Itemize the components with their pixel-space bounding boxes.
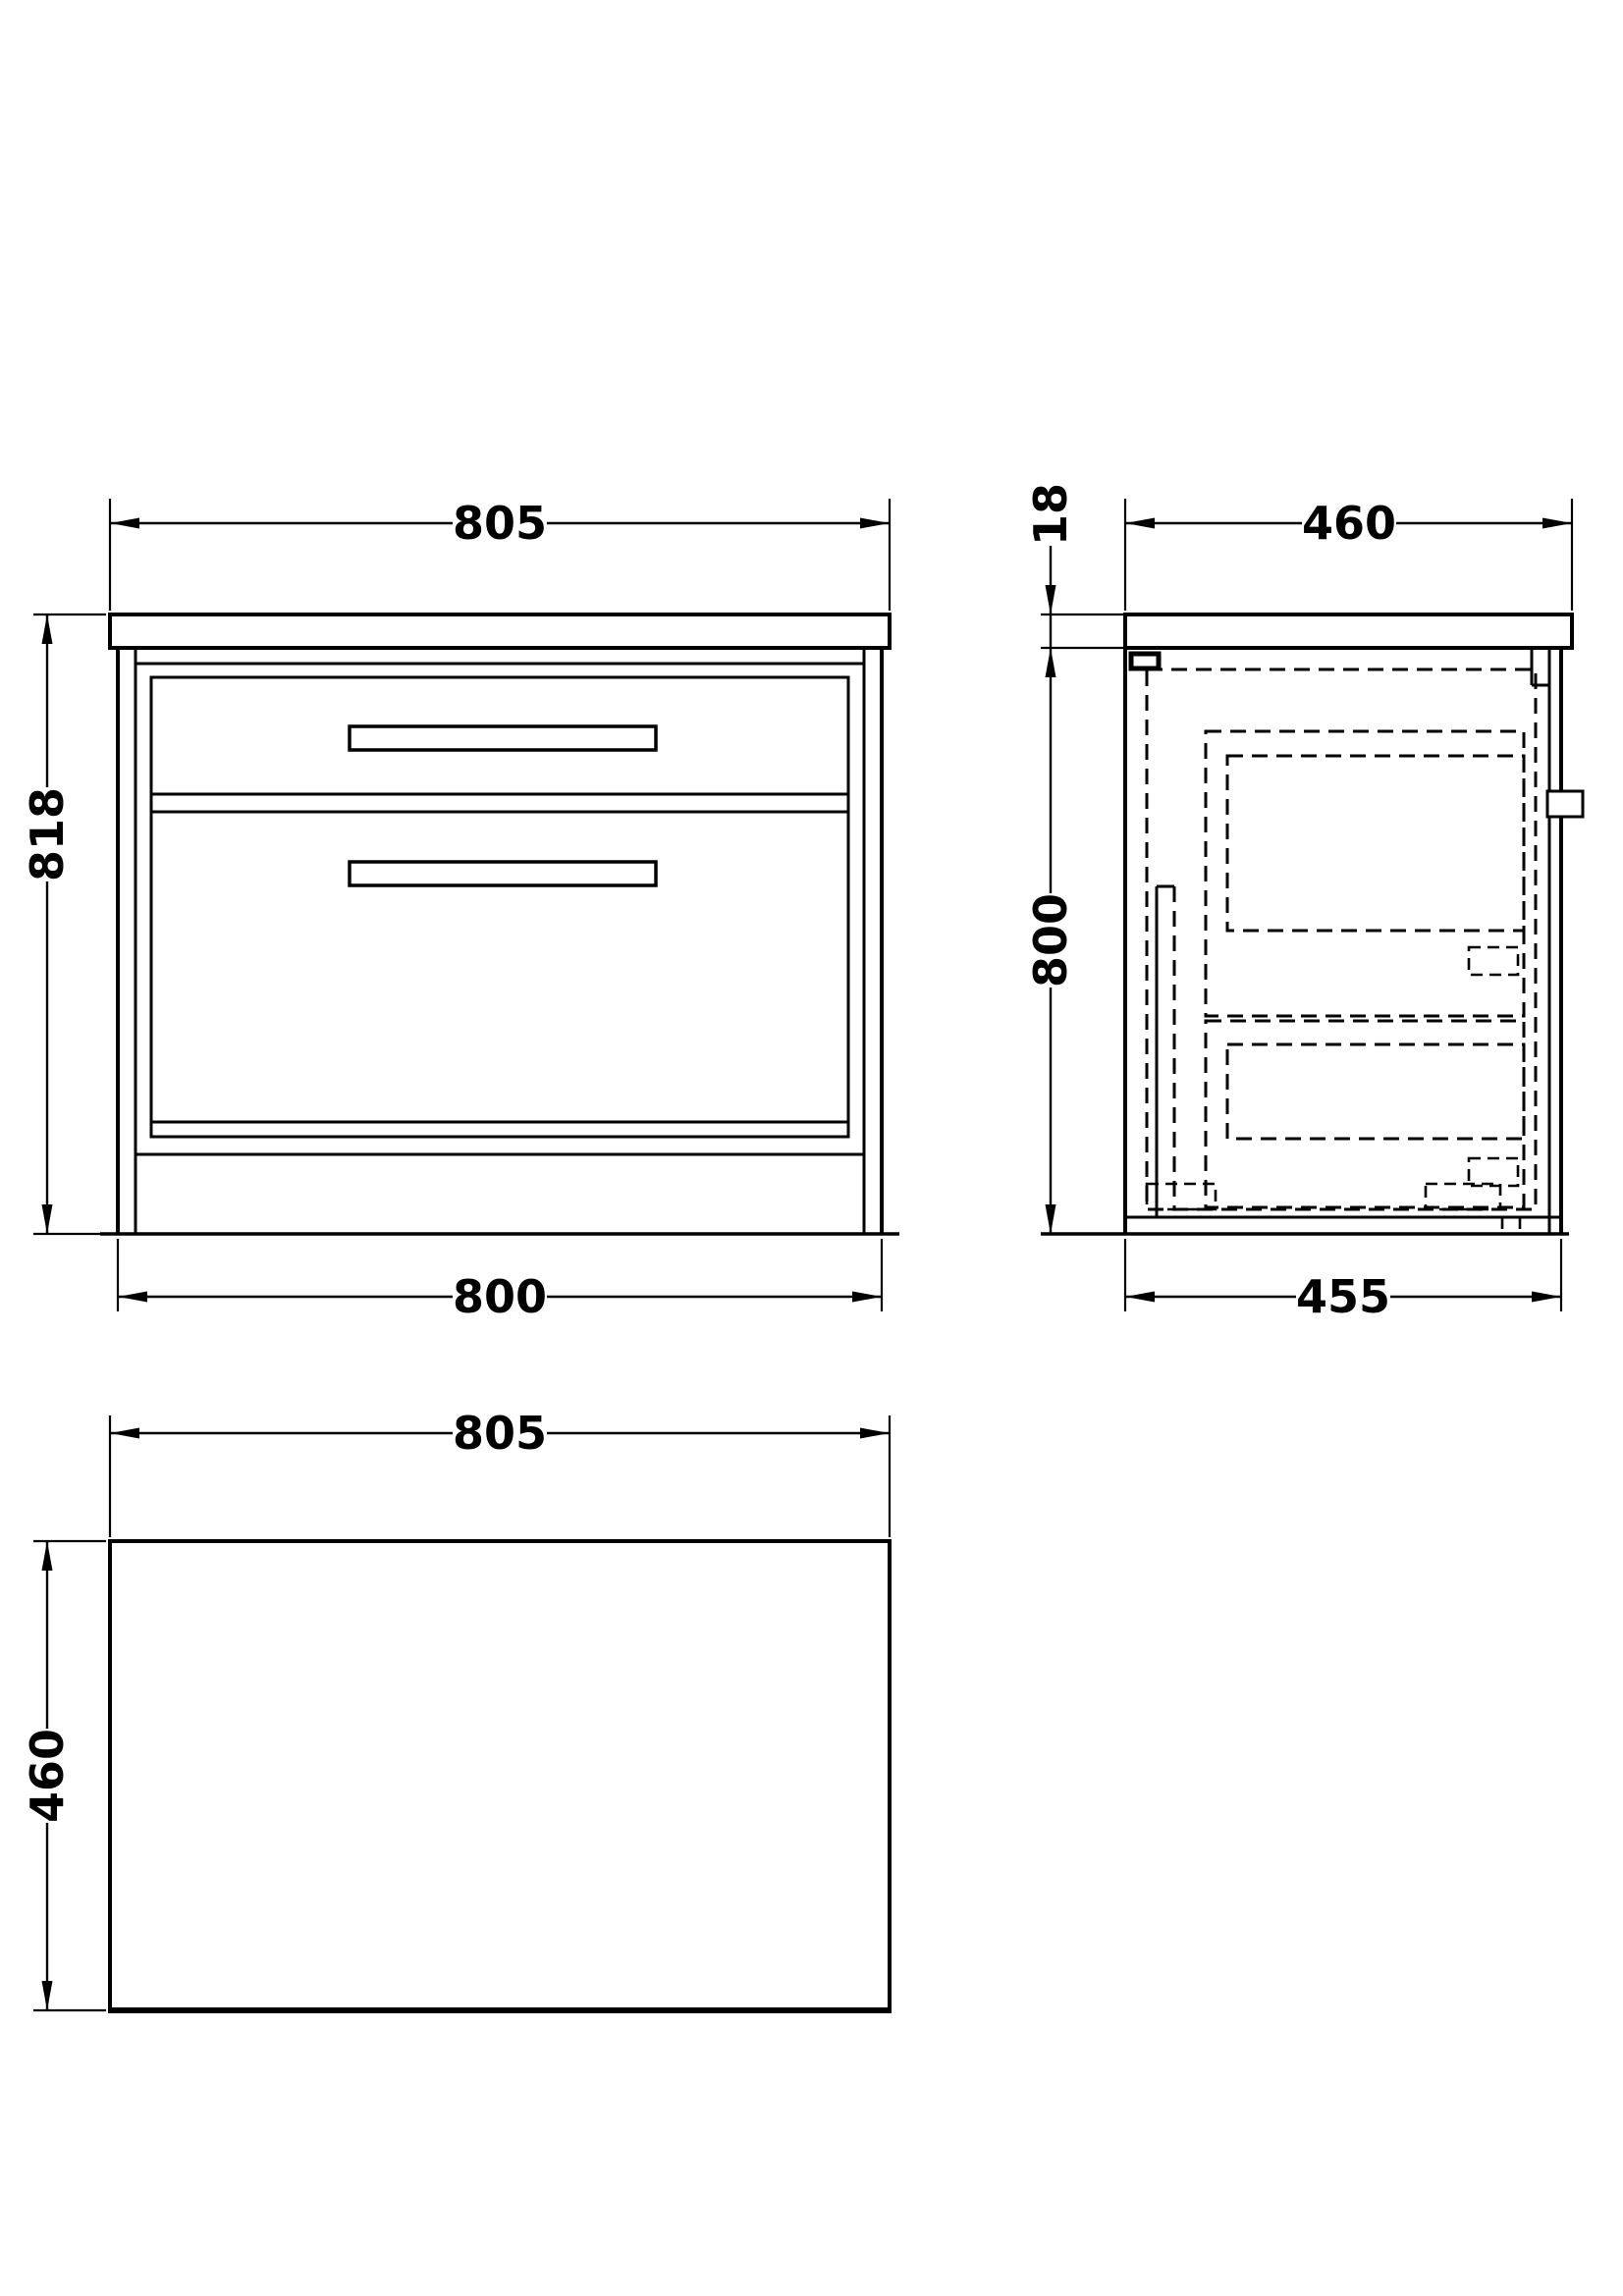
plan-width-label: 805 — [453, 1407, 547, 1460]
arrowhead — [1125, 1292, 1155, 1303]
base-foot-hidden-right — [1426, 1184, 1500, 1209]
plan-countertop-outline — [110, 1541, 890, 2010]
side-cabinet-body — [1125, 648, 1561, 1234]
front-drawer-1 — [151, 726, 848, 794]
arrowhead — [42, 1204, 53, 1234]
arrowhead — [42, 614, 53, 644]
front-height-label: 818 — [21, 787, 74, 881]
arrowhead — [1125, 518, 1155, 529]
front-dim-width-bottom: 800 — [118, 1239, 882, 1323]
arrowhead — [1532, 1292, 1561, 1303]
side-view: 460 18 800 — [1024, 483, 1583, 1323]
arrowhead — [110, 1428, 139, 1439]
wall-fixing-bracket — [1131, 654, 1159, 668]
side-dim-depth-bottom: 455 — [1125, 1239, 1561, 1323]
plan-dim-width-top: 805 — [110, 1407, 890, 1537]
drawer-2-box-inner — [1227, 1044, 1524, 1139]
front-view: 805 818 — [21, 497, 899, 1323]
drawer-1-box-inner — [1227, 756, 1524, 931]
arrowhead — [1046, 585, 1056, 614]
drawer-2-handle — [350, 862, 656, 885]
front-width-label: 805 — [453, 497, 547, 550]
side-body-depth-label: 455 — [1296, 1270, 1390, 1323]
plan-dim-depth-left: 460 — [21, 1541, 106, 2010]
drawing-sheet: 805 818 — [0, 0, 1623, 2296]
drawer-1-box-hidden — [1206, 731, 1524, 1016]
plan-view: 805 460 — [21, 1407, 892, 2010]
front-dim-width-top: 805 — [110, 497, 890, 611]
front-countertop — [110, 614, 890, 648]
arrowhead — [860, 1428, 890, 1439]
side-dim-depth-top: 460 — [1125, 497, 1572, 611]
arrowhead — [118, 1292, 147, 1303]
plan-depth-label: 460 — [21, 1729, 74, 1823]
drawer-2-runner-hidden — [1469, 1158, 1518, 1186]
arrowhead — [852, 1292, 882, 1303]
front-drawer-2 — [151, 812, 848, 1122]
arrowhead — [110, 518, 139, 529]
side-height-label: 800 — [1024, 893, 1077, 988]
drawer-2-box-outer — [1206, 1021, 1524, 1207]
front-body-width-label: 800 — [453, 1270, 547, 1323]
side-depth-label: 460 — [1302, 497, 1396, 550]
side-hidden-interior — [1147, 669, 1536, 1234]
side-countertop-thickness-label: 18 — [1024, 483, 1077, 546]
drawer-2-box-hidden — [1206, 1021, 1524, 1207]
arrowhead — [1046, 1204, 1056, 1234]
front-dim-height-left: 818 — [21, 614, 106, 1234]
drawer-1-box-outer — [1206, 731, 1524, 1016]
drawer-1-runner-hidden — [1469, 947, 1518, 975]
arrowhead — [42, 1541, 53, 1571]
side-countertop — [1125, 614, 1572, 648]
arrowhead — [1046, 648, 1056, 677]
drawer-gap-bracket — [1547, 791, 1583, 817]
arrowhead — [860, 518, 890, 529]
arrowhead — [1542, 518, 1572, 529]
drawer-1-handle — [350, 726, 656, 750]
side-dim-thickness-and-height: 18 800 — [1024, 483, 1123, 1234]
arrowhead — [42, 1981, 53, 2010]
